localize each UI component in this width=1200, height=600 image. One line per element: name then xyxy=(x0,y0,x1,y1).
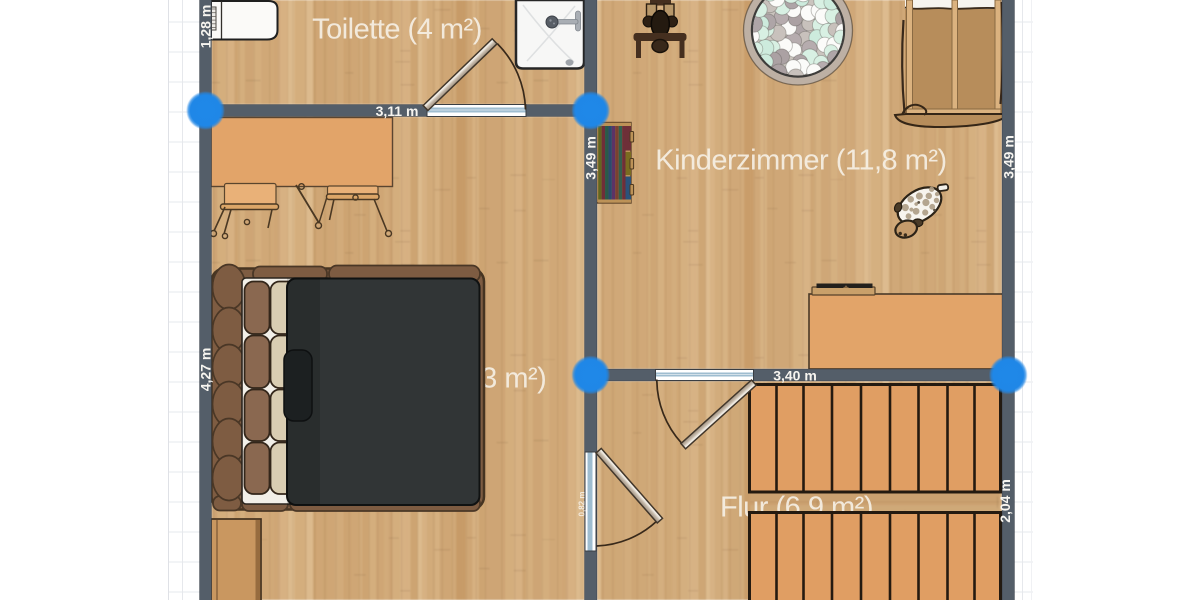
svg-text:4,27 m: 4,27 m xyxy=(197,348,213,392)
svg-text:Toilette (4 m²): Toilette (4 m²) xyxy=(312,13,482,45)
svg-text:3,11 m: 3,11 m xyxy=(376,103,419,119)
svg-text:3,49 m: 3,49 m xyxy=(1000,135,1016,179)
svg-text:3,40 m: 3,40 m xyxy=(773,367,817,383)
svg-text:0,82 m: 0,82 m xyxy=(577,492,586,517)
svg-text:3,49 m: 3,49 m xyxy=(582,136,598,180)
svg-text:1,28 m: 1,28 m xyxy=(197,5,213,49)
svg-text:Kinderzimmer (11,8 m²): Kinderzimmer (11,8 m²) xyxy=(655,145,946,177)
svg-text:2,04 m: 2,04 m xyxy=(997,479,1013,523)
